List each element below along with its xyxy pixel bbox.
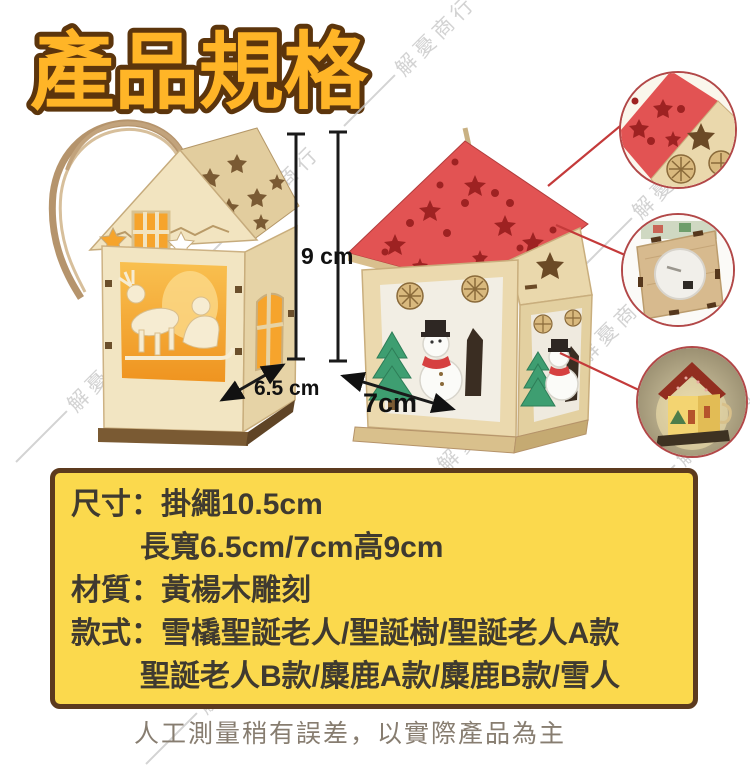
spec-line-style: 款式：雪橇聖誕老人/聖誕樹/聖誕老人A款 [71, 612, 693, 655]
lit-house-closeup-image [638, 348, 746, 456]
detail-circle-battery-closeup [621, 213, 735, 327]
detail-circle-roof-closeup [619, 71, 737, 189]
roof-closeup-image [621, 73, 735, 187]
spec-box: 尺寸：掛繩10.5cm 長寬6.5cm/7cm高9cm 材質：黃楊木雕刻 款式：… [50, 468, 698, 709]
disclaimer-text: 人工測量稍有誤差，以實際產品為主 [0, 714, 700, 750]
width-right-dimension-label: 7cm [363, 388, 417, 419]
spec-style-value: 雪橇聖誕老人/聖誕樹/聖誕老人A款 [161, 617, 619, 650]
spec-size-value: 掛繩10.5cm [161, 488, 323, 521]
spec-material-label: 材質： [71, 574, 161, 607]
page-title: 產品規格 [26, 16, 376, 121]
spec-line-size: 尺寸：掛繩10.5cm [71, 483, 693, 526]
page-title-text: 產品規格 [30, 25, 369, 119]
spec-size-label: 尺寸： [71, 488, 161, 521]
spec-line-style-2: 聖誕老人B款/麋鹿A款/麋鹿B款/雪人 [71, 655, 693, 698]
spec-material-value: 黃楊木雕刻 [161, 574, 311, 607]
right-house-side-face [518, 295, 592, 437]
spec-line-size-2: 長寬6.5cm/7cm高9cm [71, 526, 693, 569]
product-spec-page: { "title": "產品規格", "watermark": "解憂商行", … [0, 0, 750, 750]
left-house-side-wall [243, 226, 297, 432]
left-house-front-wall [102, 246, 245, 432]
height-dimension-label: 9 cm [301, 243, 353, 270]
product-photo-left-house [5, 110, 305, 455]
spec-line-material: 材質：黃楊木雕刻 [71, 569, 693, 612]
width-left-dimension-label: 6.5 cm [254, 377, 319, 401]
battery-closeup-image [623, 215, 733, 325]
spec-style-label: 款式： [71, 617, 161, 650]
detail-circle-lit-house-closeup [636, 346, 748, 458]
